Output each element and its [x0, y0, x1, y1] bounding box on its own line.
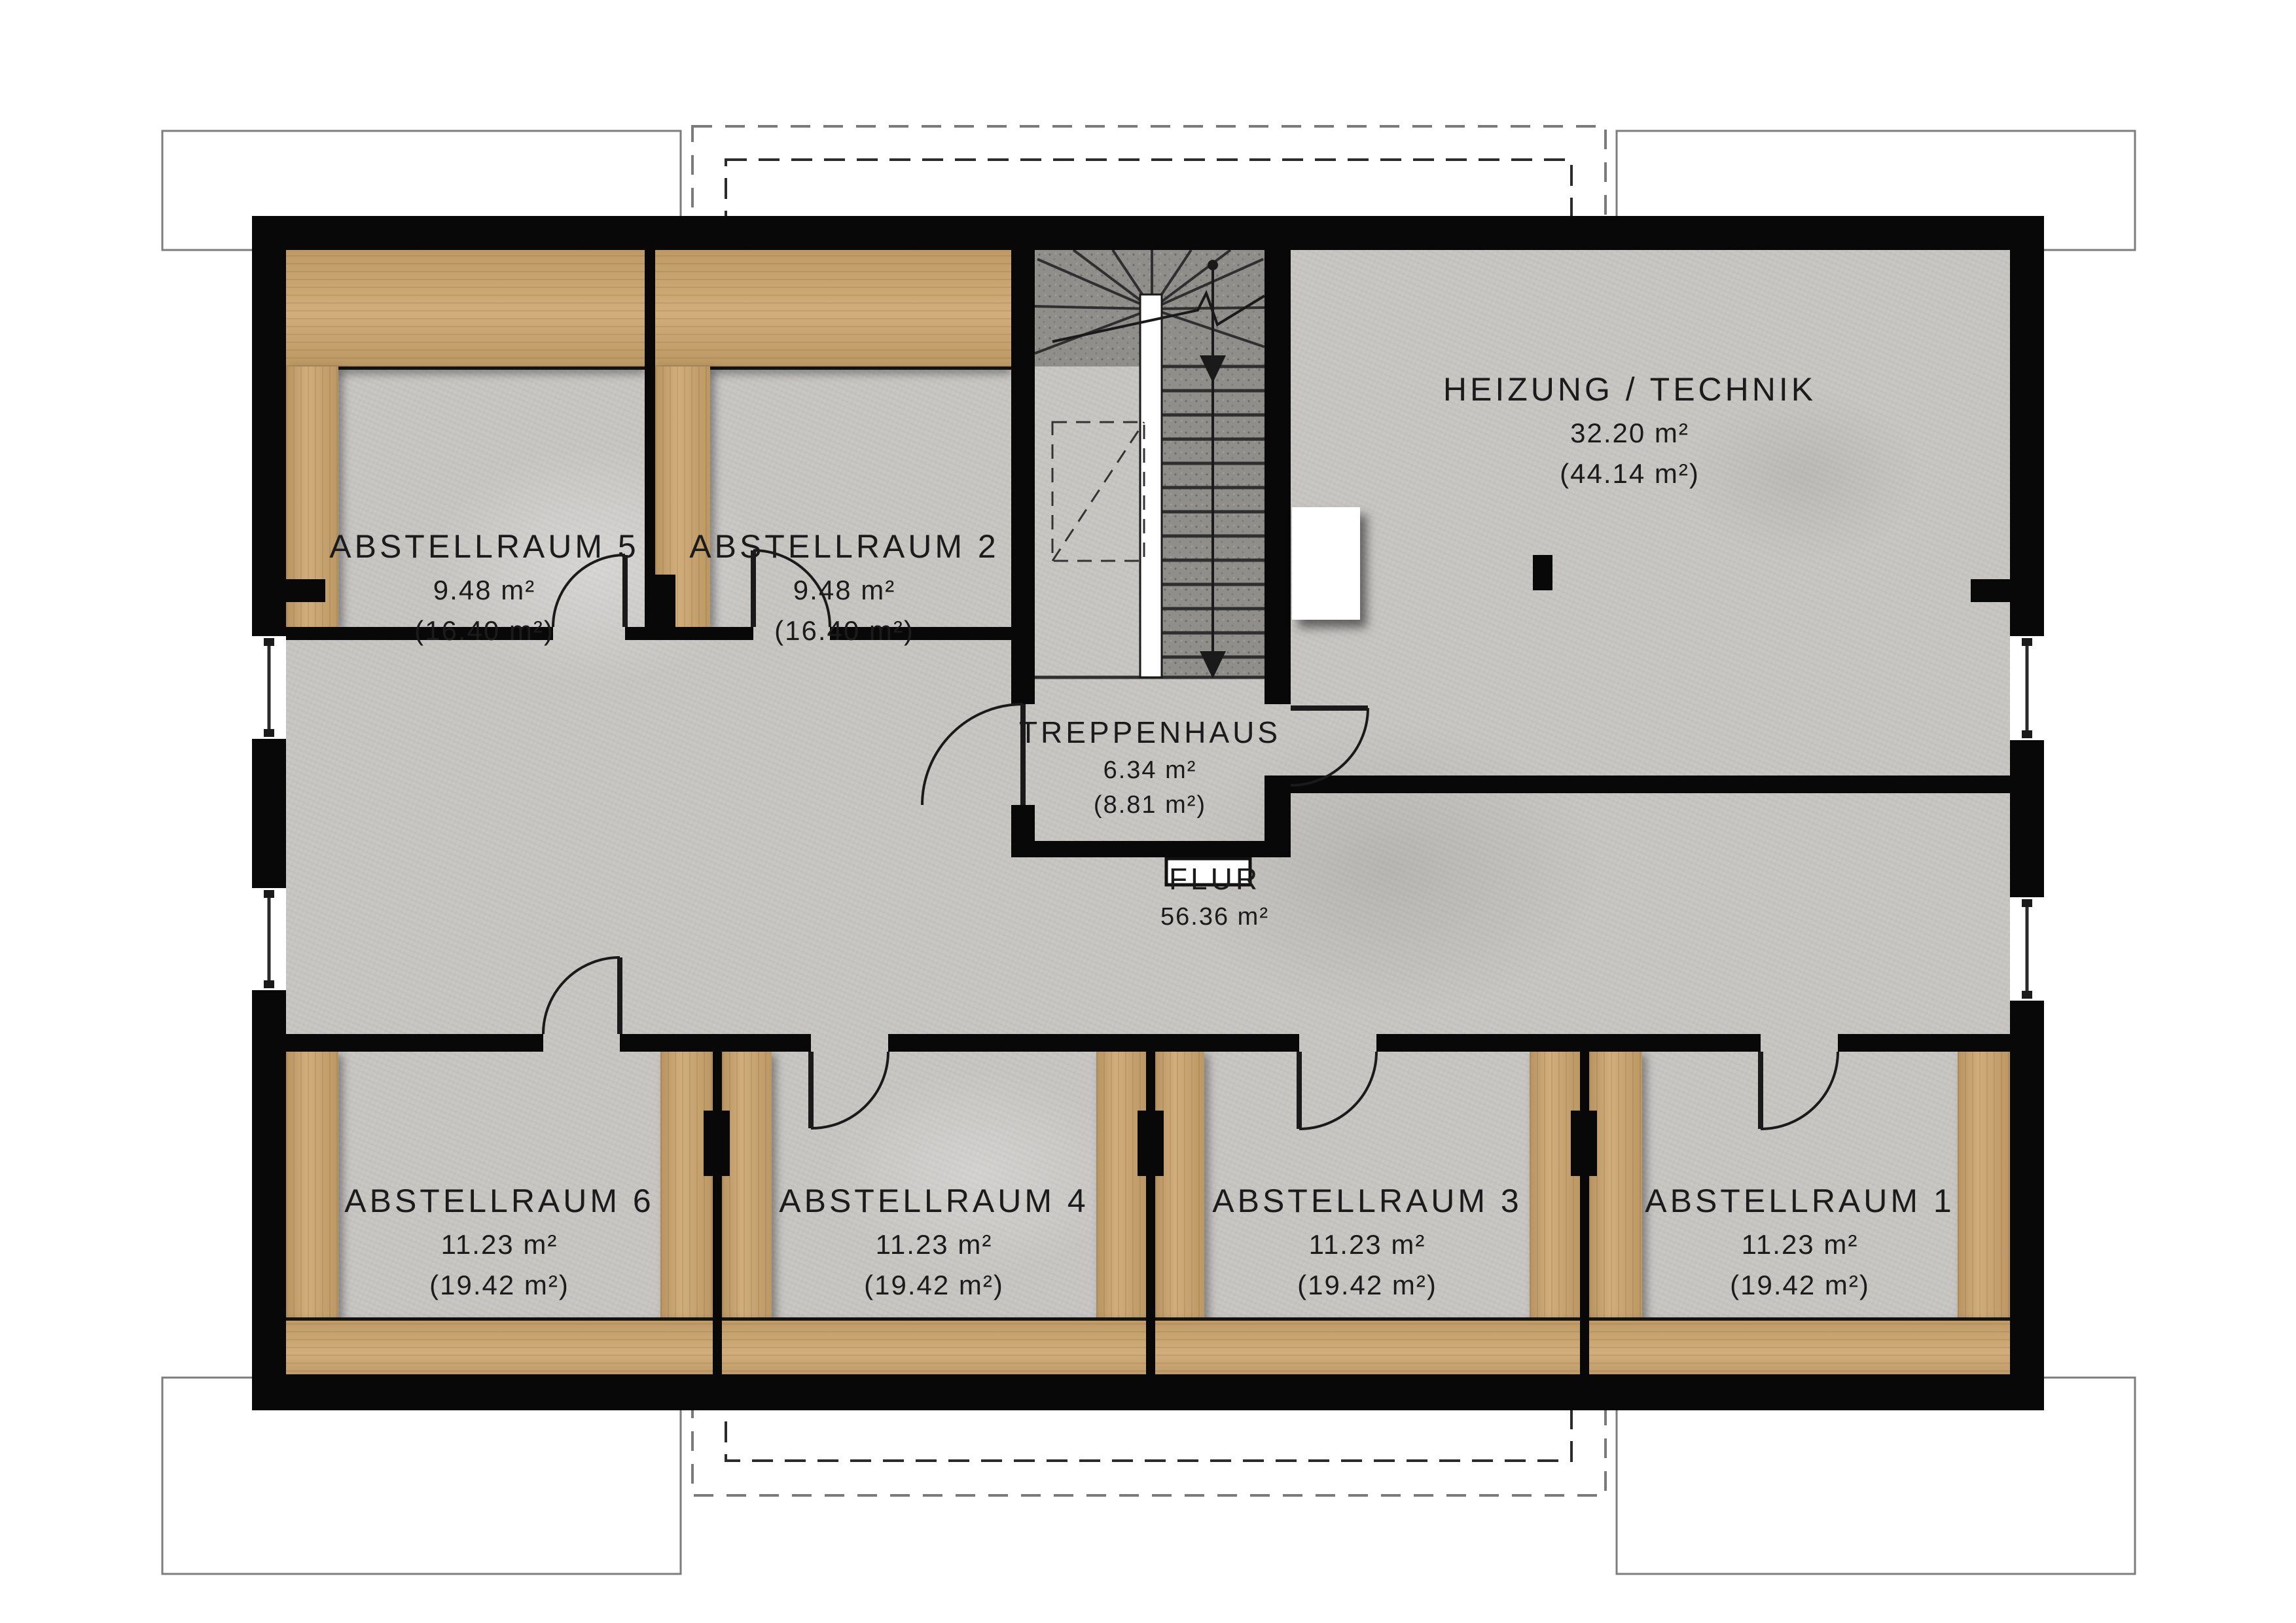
room-area: 9.48 m² — [329, 575, 639, 606]
room-gross-area: (19.42 m²) — [779, 1270, 1088, 1301]
room-area: 11.23 m² — [1645, 1229, 1954, 1260]
room-area: 56.36 m² — [1160, 903, 1269, 931]
room-gross-area: (16.40 m²) — [689, 615, 999, 647]
room-label-abstellraum6: ABSTELLRAUM 6 11.23 m² (19.42 m²) — [344, 1182, 654, 1301]
room-label-abstellraum5: ABSTELLRAUM 5 9.48 m² (16.40 m²) — [329, 527, 639, 647]
room-label-abstellraum4: ABSTELLRAUM 4 11.23 m² (19.42 m²) — [779, 1182, 1088, 1301]
room-area: 11.23 m² — [779, 1229, 1088, 1260]
room-name: TREPPENHAUS — [1019, 715, 1281, 750]
room-name: ABSTELLRAUM 2 — [689, 527, 999, 565]
room-area: 11.23 m² — [1212, 1229, 1522, 1260]
room-label-heizung-technik: HEIZUNG / TECHNIK 32.20 m² (44.14 m²) — [1443, 370, 1816, 490]
room-name: HEIZUNG / TECHNIK — [1443, 370, 1816, 408]
room-gross-area: (8.81 m²) — [1019, 791, 1281, 819]
headroom-dashed-outline — [1052, 422, 1144, 561]
room-label-abstellraum2: ABSTELLRAUM 2 9.48 m² (16.40 m²) — [689, 527, 999, 647]
room-area: 32.20 m² — [1443, 418, 1816, 449]
room-name: ABSTELLRAUM 4 — [779, 1182, 1088, 1220]
room-label-abstellraum3: ABSTELLRAUM 3 11.23 m² (19.42 m²) — [1212, 1182, 1522, 1301]
room-gross-area: (16.40 m²) — [329, 615, 639, 647]
room-label-flur: FLUR 56.36 m² — [1160, 861, 1269, 931]
room-gross-area: (19.42 m²) — [1645, 1270, 1954, 1301]
room-name: FLUR — [1160, 861, 1269, 897]
room-name: ABSTELLRAUM 1 — [1645, 1182, 1954, 1220]
room-gross-area: (19.42 m²) — [1212, 1270, 1522, 1301]
floor-plan-canvas: ABSTELLRAUM 5 9.48 m² (16.40 m²) ABSTELL… — [0, 0, 2296, 1623]
room-label-abstellraum1: ABSTELLRAUM 1 11.23 m² (19.42 m²) — [1645, 1182, 1954, 1301]
room-area: 11.23 m² — [344, 1229, 654, 1260]
room-area: 6.34 m² — [1019, 757, 1281, 785]
room-name: ABSTELLRAUM 6 — [344, 1182, 654, 1220]
room-name: ABSTELLRAUM 3 — [1212, 1182, 1522, 1220]
room-area: 9.48 m² — [689, 575, 999, 606]
room-label-treppenhaus: TREPPENHAUS 6.34 m² (8.81 m²) — [1019, 715, 1281, 819]
room-gross-area: (44.14 m²) — [1443, 458, 1816, 490]
room-gross-area: (19.42 m²) — [344, 1270, 654, 1301]
room-name: ABSTELLRAUM 5 — [329, 527, 639, 565]
